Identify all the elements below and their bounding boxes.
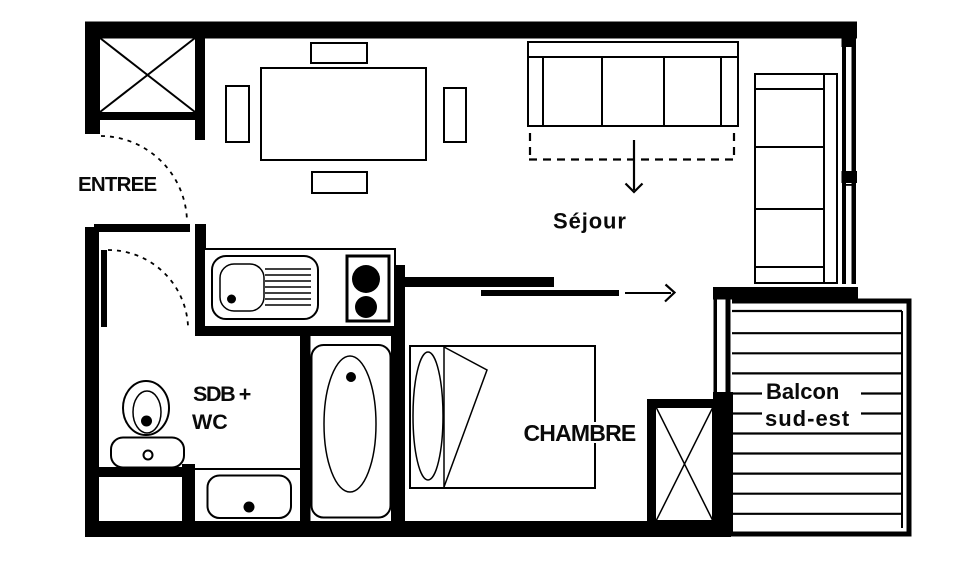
svg-text:SDB +: SDB + [193, 382, 251, 406]
svg-text:WC: WC [192, 410, 228, 434]
svg-text:Séjour: Séjour [553, 209, 627, 234]
svg-text:sud-est: sud-est [765, 406, 850, 431]
svg-text:CHAMBRE: CHAMBRE [524, 420, 636, 446]
svg-text:ENTREE: ENTREE [78, 173, 156, 196]
svg-text:Balcon: Balcon [766, 379, 839, 404]
